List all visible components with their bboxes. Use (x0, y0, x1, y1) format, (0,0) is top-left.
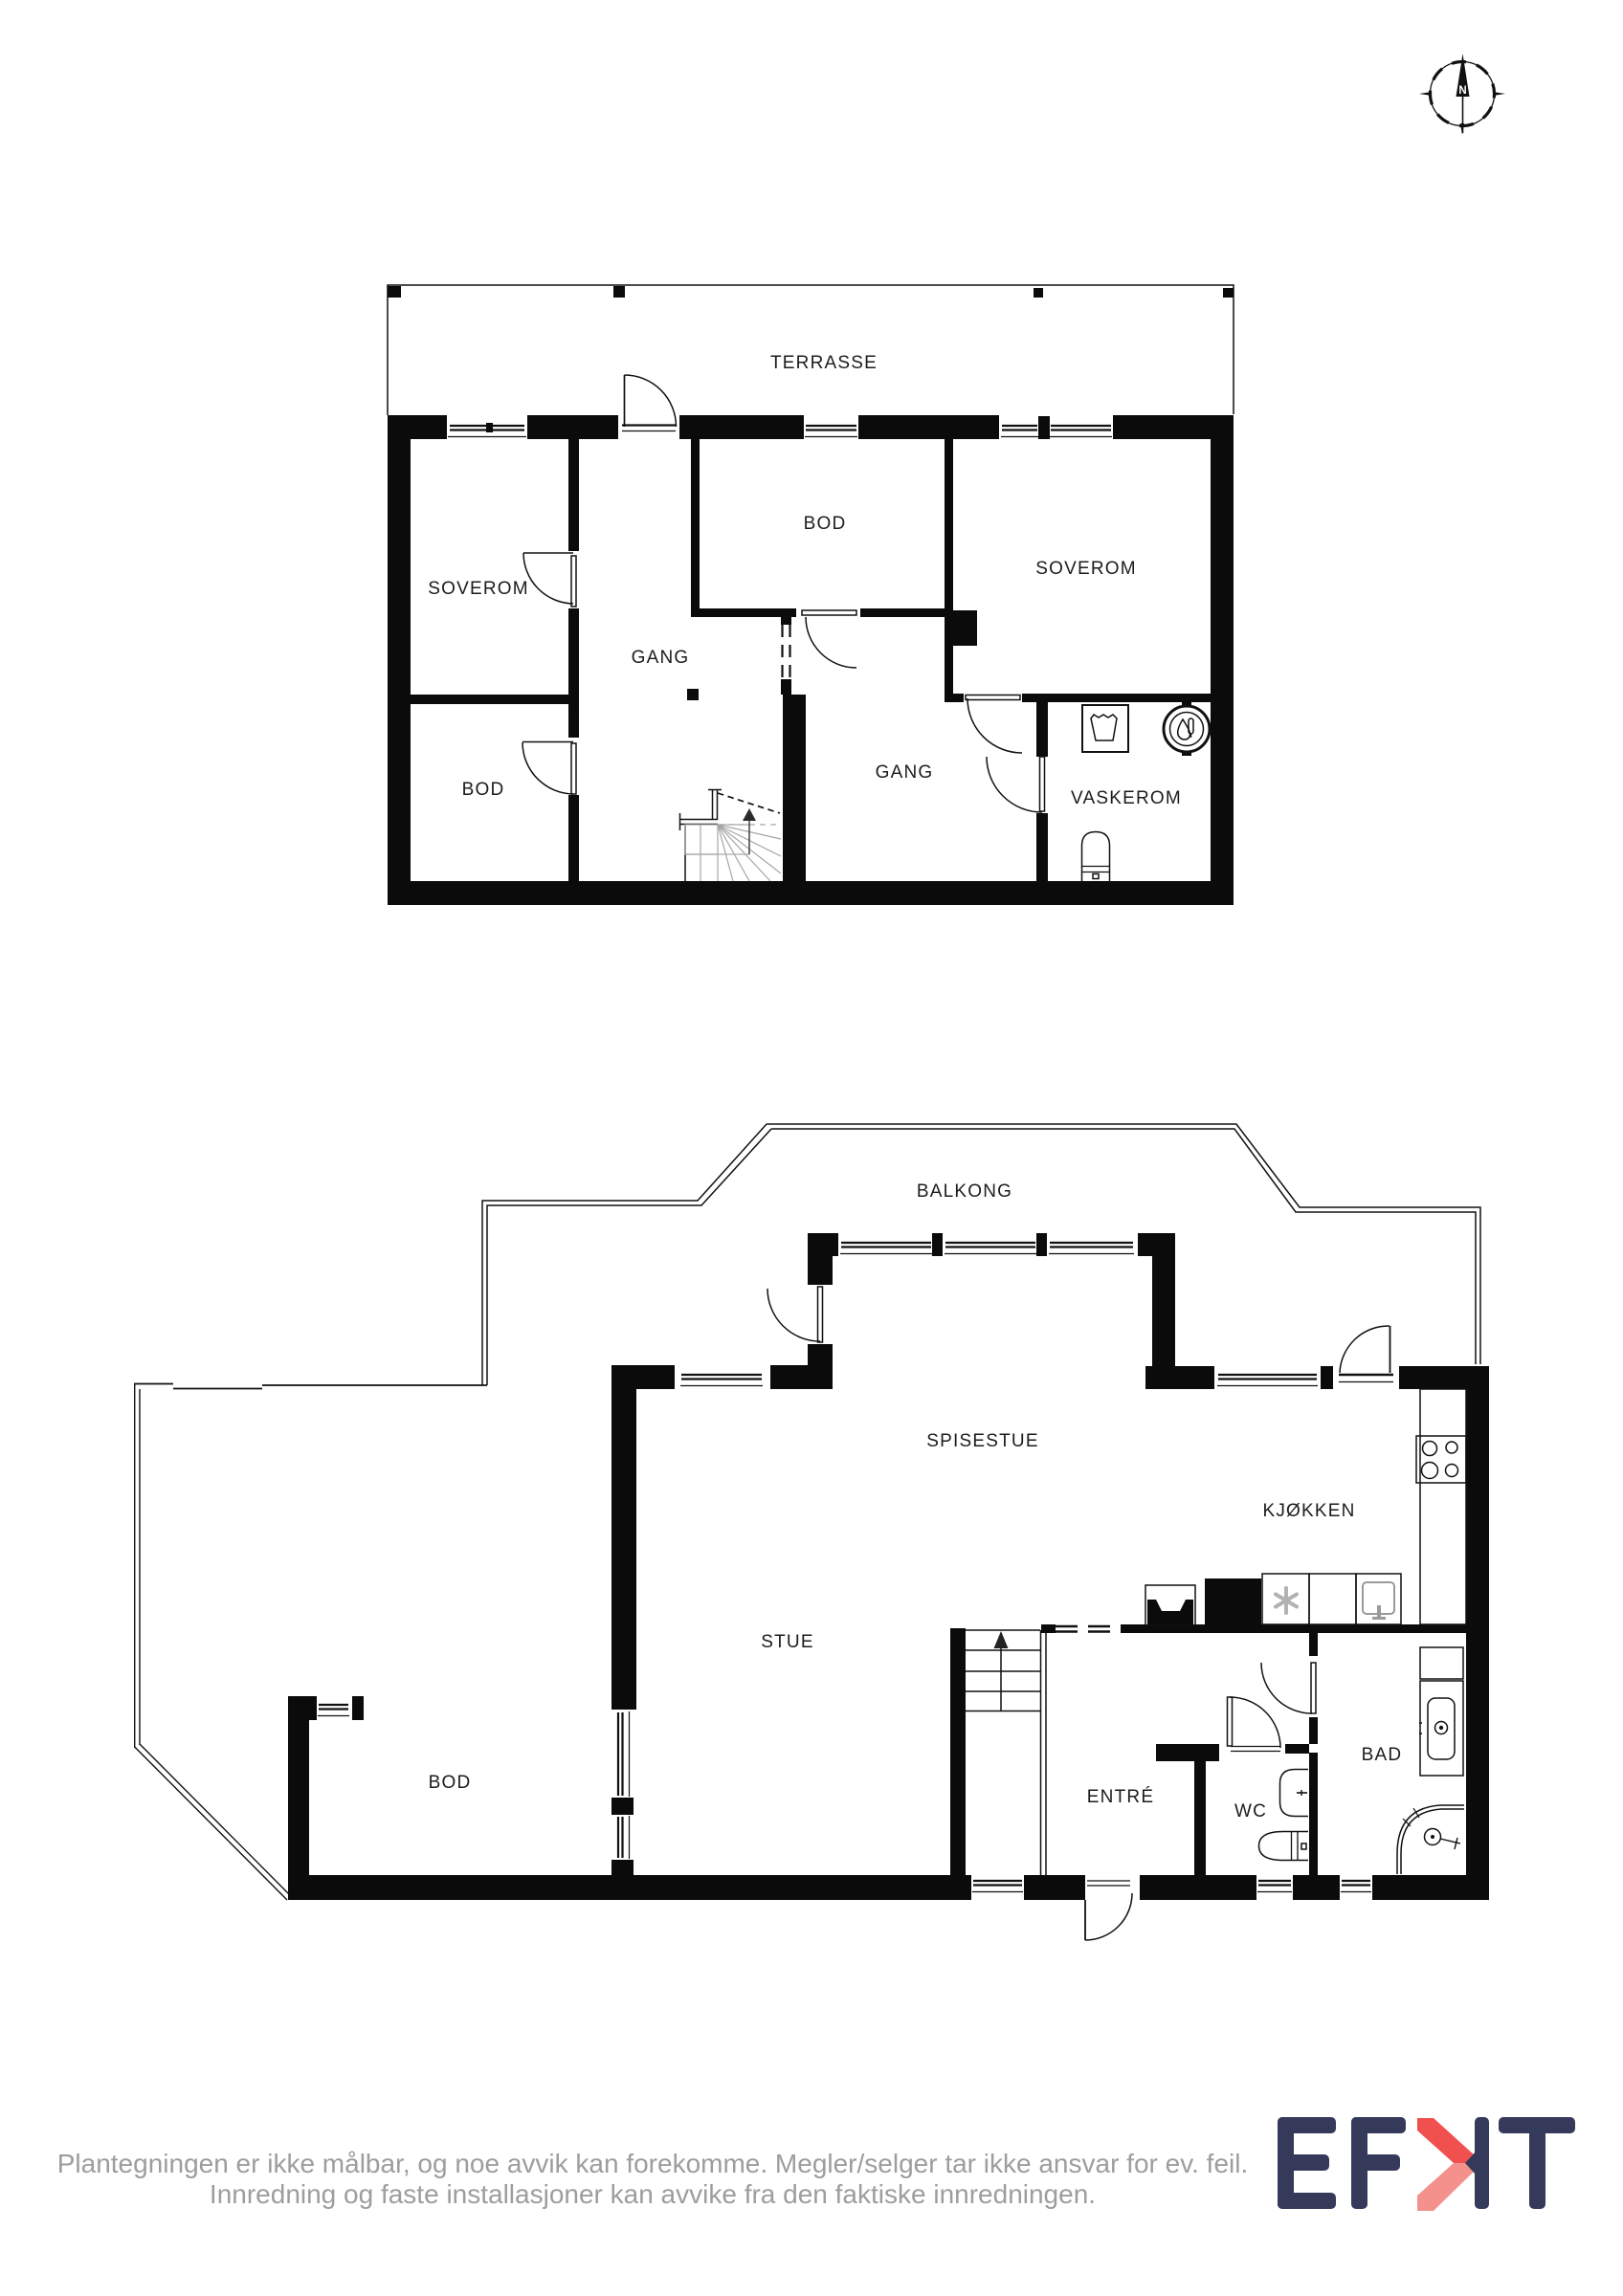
svg-text:BOD: BOD (804, 514, 847, 534)
svg-text:GANG: GANG (632, 648, 690, 668)
svg-text:ENTRÉ: ENTRÉ (1087, 1787, 1154, 1807)
svg-text:KJØKKEN: KJØKKEN (1262, 1501, 1355, 1521)
svg-text:SOVEROM: SOVEROM (1035, 559, 1137, 579)
svg-text:BALKONG: BALKONG (917, 1181, 1012, 1202)
svg-text:GANG: GANG (876, 762, 934, 783)
svg-text:BAD: BAD (1362, 1745, 1403, 1765)
svg-text:VASKEROM: VASKEROM (1071, 788, 1182, 808)
svg-text:SPISESTUE: SPISESTUE (926, 1431, 1038, 1451)
svg-text:Plantegningen er ikke målbar,: Plantegningen er ikke målbar, og noe avv… (57, 2149, 1249, 2178)
svg-text:SOVEROM: SOVEROM (428, 579, 529, 599)
svg-text:BOD: BOD (462, 780, 505, 800)
svg-text:N: N (1458, 85, 1466, 97)
svg-text:Innredning og faste installasj: Innredning og faste installasjoner kan a… (210, 2179, 1096, 2209)
svg-text:TERRASSE: TERRASSE (770, 353, 878, 373)
svg-text:WC: WC (1234, 1801, 1267, 1821)
svg-text:STUE: STUE (761, 1632, 813, 1652)
svg-text:BOD: BOD (429, 1773, 472, 1793)
